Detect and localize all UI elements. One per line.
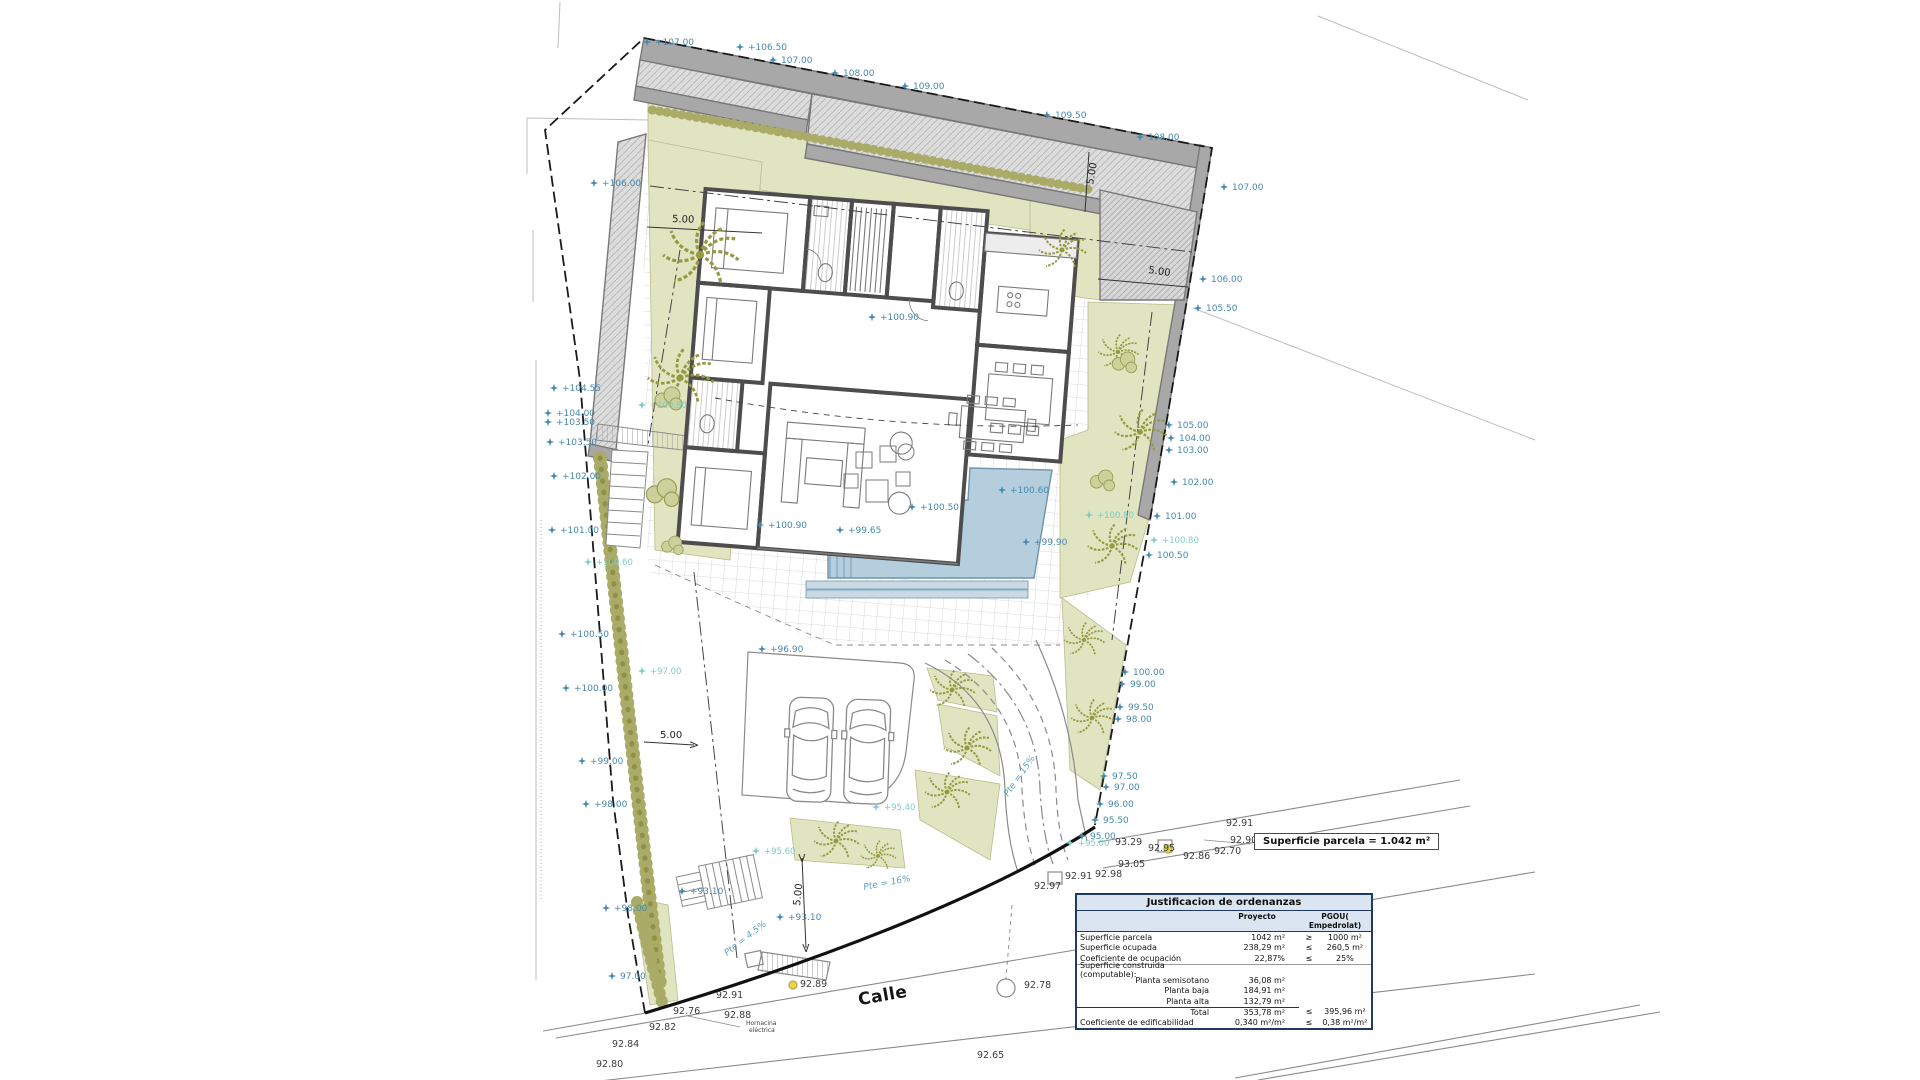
table-row-label: Total [1077,1007,1215,1017]
table-row: Superficie parcela1042 m²≥1000 m² [1077,932,1371,943]
spot-level-label: +106.50 [748,43,787,53]
street-level-label: 93.29 [1115,837,1142,848]
level-marker-icon [1167,434,1175,442]
table-header-pgou: PGOU( Empedrolat) [1299,912,1371,930]
street-level-label: 92.97 [1034,881,1061,892]
spot-level-teal-label: +95.40 [884,803,915,813]
level-marker-icon [602,904,610,912]
spot-level-label: +106.00 [602,179,641,189]
spot-level-label: 97.00 [1114,783,1140,793]
table-row-pgou: 25% [1319,954,1371,963]
dimension-label: 5.00 [792,883,805,906]
table-row-label: Planta semisotano [1077,976,1215,985]
spot-level-label: 107.00 [1232,183,1264,193]
spot-level-label: +99.90 [1034,538,1068,548]
spot-level-teal-label: +100.60 [596,558,633,568]
level-marker-icon [1153,512,1161,520]
level-marker-icon [550,472,558,480]
table-row-operator: ≤ [1299,943,1319,952]
table-row-label: Planta alta [1077,997,1215,1006]
street-level-label: 92.80 [596,1059,623,1070]
spot-level-label: +104.55 [562,384,601,394]
entry-stairs [675,855,762,915]
level-marker-icon [638,667,646,675]
spot-level-label: 100.00 [1133,668,1165,678]
dimension-label: 5.00 [660,730,682,741]
spot-level-label: 109.00 [913,82,945,92]
table-row-proyecto: 353,78 m² [1215,1007,1299,1017]
level-marker-icon [1150,536,1158,544]
spot-level-label: 101.00 [1165,512,1197,522]
spot-level-label: +100.90 [880,313,919,323]
table-row-proyecto: 36,08 m² [1215,976,1299,985]
level-marker-icon [544,409,552,417]
spot-level-label: 96.00 [1108,800,1134,810]
table-row: Planta baja184,91 m² [1077,986,1371,997]
spot-level-label: +107.00 [655,38,694,48]
parked-car-2 [839,699,895,805]
level-marker-icon [752,847,760,855]
spot-level-label: +100.50 [570,630,609,640]
slope-label: Pte = 15% [1002,754,1038,799]
street-level-label: 92.70 [1214,846,1241,857]
spot-level-label: +101.00 [560,526,599,536]
spot-level-label: +98.00 [594,800,628,810]
table-row-proyecto: 0,340 m²/m² [1215,1018,1299,1027]
street-level-label: 92.84 [612,1039,639,1050]
street-level-label: 92.91 [1065,871,1092,882]
spot-level-label: 108.00 [843,69,875,79]
spot-level-label: 102.00 [1182,478,1214,488]
spot-level-label: 97.50 [1112,772,1138,782]
spot-level-teal-label: +100.80 [1162,536,1199,546]
table-row: Superficie ocupada238,29 m²≤260,5 m² [1077,943,1371,954]
spot-level-label: +100.90 [768,521,807,531]
site-plan-canvas: +107.00+106.50107.00108.00109.00109.5010… [0,0,1920,1080]
table-row-pgou: 395,96 m² [1319,1007,1371,1016]
spot-level-label: 98.00 [1126,715,1152,725]
street-level-label: 92.82 [649,1022,676,1033]
spot-level-label: 99.00 [1130,680,1156,690]
table-row-label: Superficie ocupada [1077,943,1215,952]
level-marker-icon [1199,275,1207,283]
street-level-label: 92.91 [1226,818,1253,829]
level-marker-icon [550,384,558,392]
utility-note-label: Hornacina [746,1020,777,1027]
level-marker-icon [776,913,784,921]
utility-note-label: eléctrica [749,1027,775,1034]
spot-level-label: 107.00 [781,56,813,66]
table-row-operator: ≤ [1299,1018,1319,1027]
spot-level-label: +93.10 [690,887,724,897]
table-row-pgou: 260,5 m² [1319,943,1371,952]
spot-level-label: 103.00 [1177,446,1209,456]
spot-level-label: 95.50 [1103,816,1129,826]
spot-level-label: 109.50 [1055,111,1087,121]
street-level-label: 92.78 [1024,980,1051,991]
street-level-label: 92.76 [673,1006,700,1017]
street-level-label: 92.65 [977,1050,1004,1061]
level-marker-icon [1091,816,1099,824]
spot-level-label: +103.50 [558,438,597,448]
ordinances-table: Justificacion de ordenanzasProyectoPGOU(… [1075,893,1373,1030]
level-marker-icon [584,558,592,566]
slope-label: Pte = 16% [863,874,912,893]
level-marker-icon [1220,183,1228,191]
spot-level-label: +100.50 [920,503,959,513]
table-row-proyecto: 132,79 m² [1215,997,1299,1006]
spot-level-teal-label: +100.80 [1097,511,1134,521]
street-level-label: 92.86 [1183,851,1210,862]
table-row-proyecto: 238,29 m² [1215,943,1299,952]
level-marker-icon [736,43,744,51]
table-header-proyecto: Proyecto [1215,912,1299,930]
level-marker-icon [578,757,586,765]
spot-level-label: 105.50 [1206,304,1238,314]
spot-level-label: 99.50 [1128,703,1154,713]
table-row-pgou: 1000 m² [1319,933,1371,942]
table-row-proyecto: 1042 m² [1215,933,1299,942]
dimension-label: 5.00 [672,214,695,226]
spot-level-label: 105.00 [1177,421,1209,431]
level-marker-icon [562,684,570,692]
table-row-operator: ≤ [1299,1007,1319,1016]
spot-level-label: +100.00 [574,684,613,694]
level-marker-icon [1165,446,1173,454]
street-level-label: 92.95 [1148,843,1175,854]
spot-level-label: +102.00 [562,472,601,482]
spot-level-label: 97.00 [620,972,646,982]
spot-level-teal-label: +97.00 [650,667,681,677]
spot-level-label: +99.65 [848,526,881,536]
spot-level-label: 108.00 [1148,133,1180,143]
level-marker-icon [1145,551,1153,559]
spot-level-label: 104.00 [1179,434,1211,444]
level-marker-icon [608,972,616,980]
parcel-area-label: Superficie parcela = 1.042 m² [1254,833,1439,850]
spot-level-label: +96.90 [770,645,804,655]
street-level-label: 92.89 [800,979,827,990]
level-marker-icon [1170,478,1178,486]
level-marker-icon [1096,800,1104,808]
table-header-cell [1077,912,1215,930]
spot-level-label: +103.50 [556,418,595,428]
spot-level-label: +93.10 [788,913,822,923]
table-row: Total353,78 m²≤395,96 m² [1077,1007,1371,1018]
spot-level-label: +98.00 [614,904,648,914]
spot-level-label: +100.60 [1010,486,1049,496]
level-marker-icon [582,800,590,808]
spot-level-teal-label: +95.60 [764,847,795,857]
spot-level-label: +99.00 [590,757,624,767]
table-header-row: ProyectoPGOU( Empedrolat) [1077,911,1371,932]
spot-level-teal-label: +100.80 [650,401,687,411]
table-title: Justificacion de ordenanzas [1077,895,1371,911]
table-row-label: Planta baja [1077,986,1215,995]
level-marker-icon [758,645,766,653]
spot-level-teal-label: +95.00 [1078,839,1109,849]
parked-car-1 [782,697,838,803]
level-marker-icon [638,401,646,409]
site-plan-drawing: +107.00+106.50107.00108.00109.00109.5010… [0,0,1920,1080]
spot-level-label: 100.50 [1157,551,1189,561]
level-marker-icon [546,438,554,446]
table-row-operator: ≤ [1299,954,1319,963]
table-row-proyecto: 184,91 m² [1215,986,1299,995]
table-row: Superficie construida (computable): [1077,965,1371,976]
table-row-label: Superficie parcela [1077,933,1215,942]
level-marker-icon [590,179,598,187]
table-row: Planta semisotano36,08 m² [1077,975,1371,986]
street-level-label: 92.91 [716,990,743,1001]
table-row-pgou: 0,38 m²/m² [1319,1018,1371,1027]
table-row: Planta alta132,79 m² [1077,996,1371,1007]
table-row-proyecto: 22,87% [1215,954,1299,963]
level-marker-icon [558,630,566,638]
level-marker-icon [544,418,552,426]
spot-level-label: 106.00 [1211,275,1243,285]
table-row-operator: ≥ [1299,933,1319,942]
table-row: Coeficiente de edificabilidad0,340 m²/m²… [1077,1017,1371,1028]
table-row-label: Coeficiente de edificabilidad [1077,1018,1215,1027]
level-marker-icon [548,526,556,534]
street-level-label: 92.98 [1095,869,1122,880]
